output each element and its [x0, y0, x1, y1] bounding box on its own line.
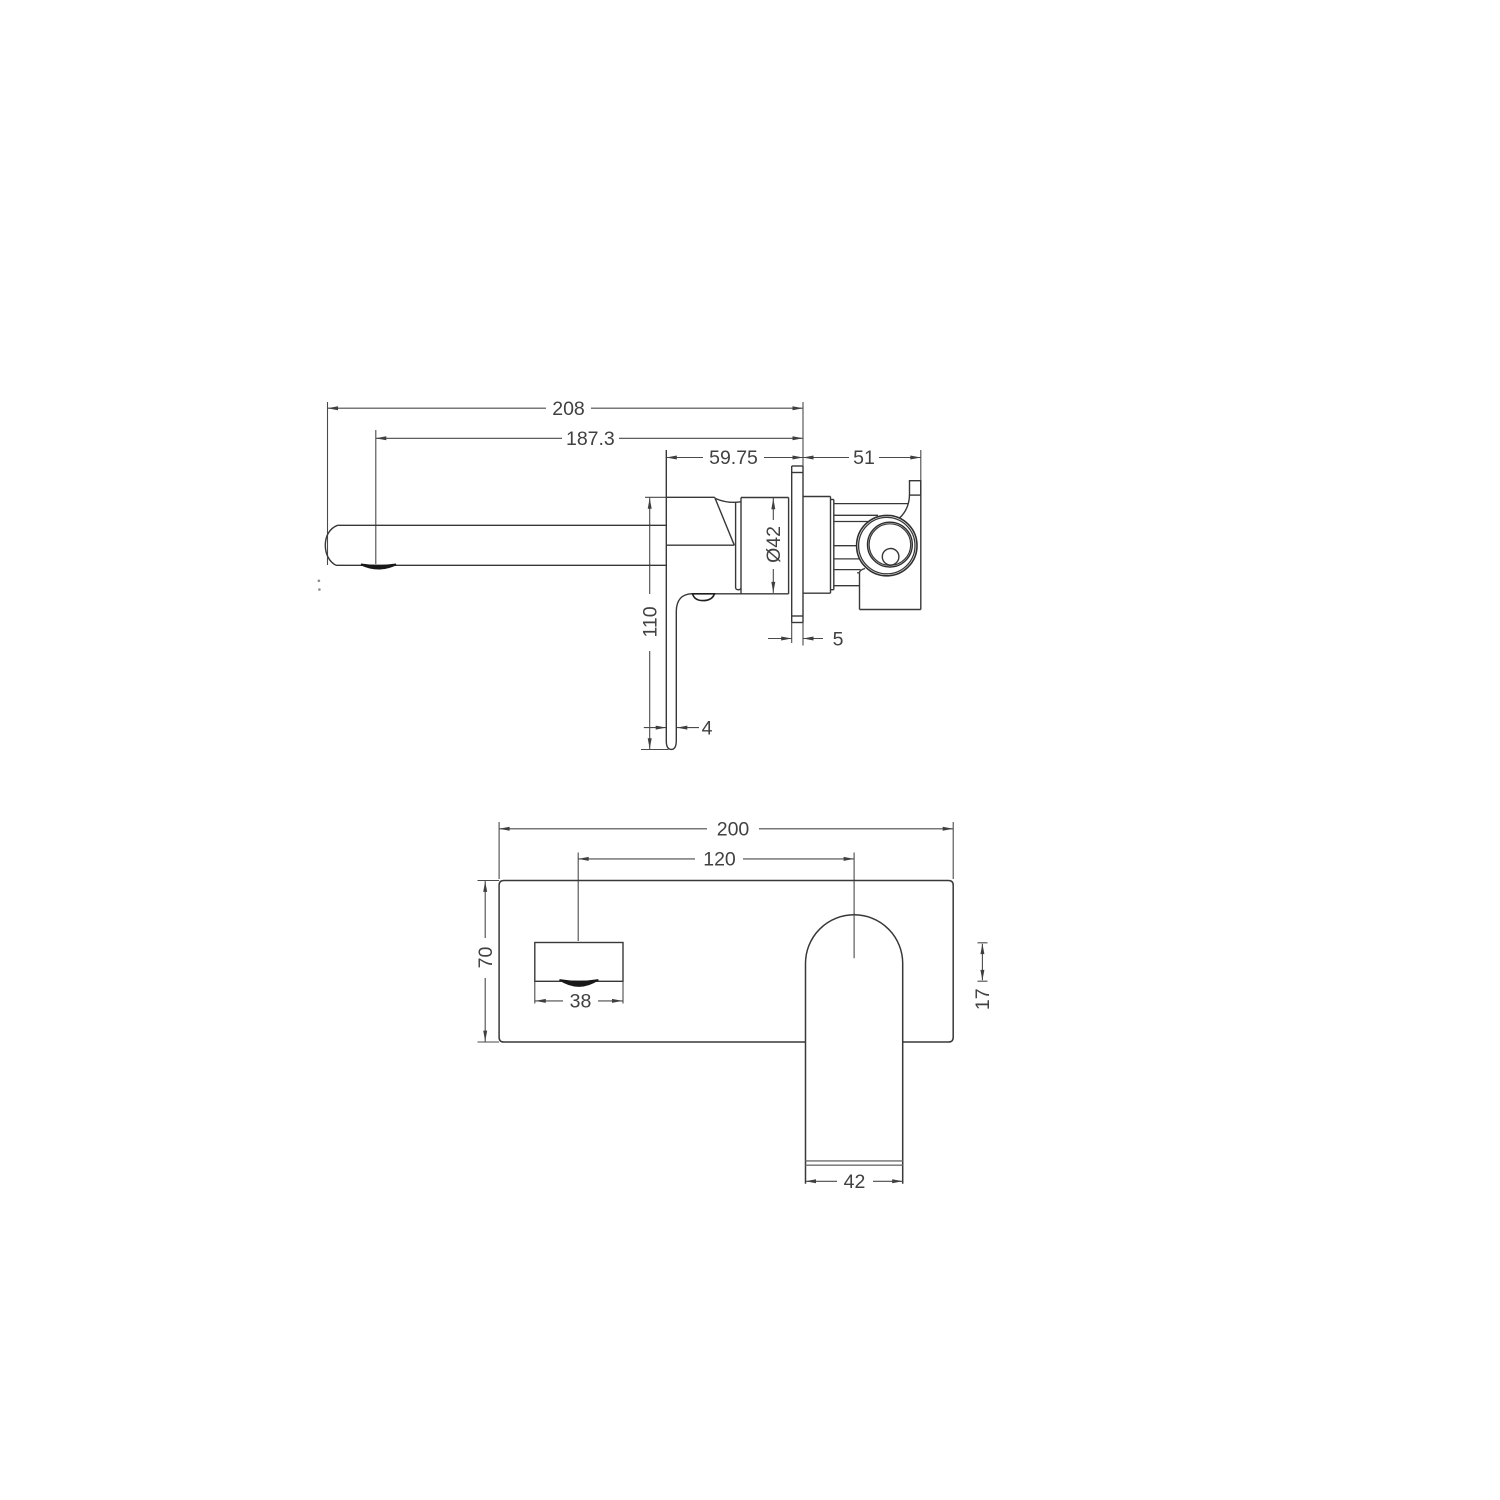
svg-text:120: 120 [703, 849, 736, 871]
svg-text:17: 17 [972, 988, 994, 1010]
svg-text:42: 42 [844, 1171, 866, 1193]
svg-text:4: 4 [702, 717, 713, 739]
svg-text:5: 5 [833, 628, 844, 650]
svg-text:187.3: 187.3 [566, 428, 615, 450]
svg-text:70: 70 [475, 947, 497, 969]
svg-text:38: 38 [570, 991, 592, 1013]
svg-text:208: 208 [552, 398, 585, 420]
svg-text:Ø42: Ø42 [763, 526, 785, 563]
svg-text:200: 200 [717, 819, 750, 841]
svg-text:51: 51 [853, 447, 875, 469]
svg-text:110: 110 [639, 606, 661, 637]
svg-text:59.75: 59.75 [709, 447, 758, 469]
